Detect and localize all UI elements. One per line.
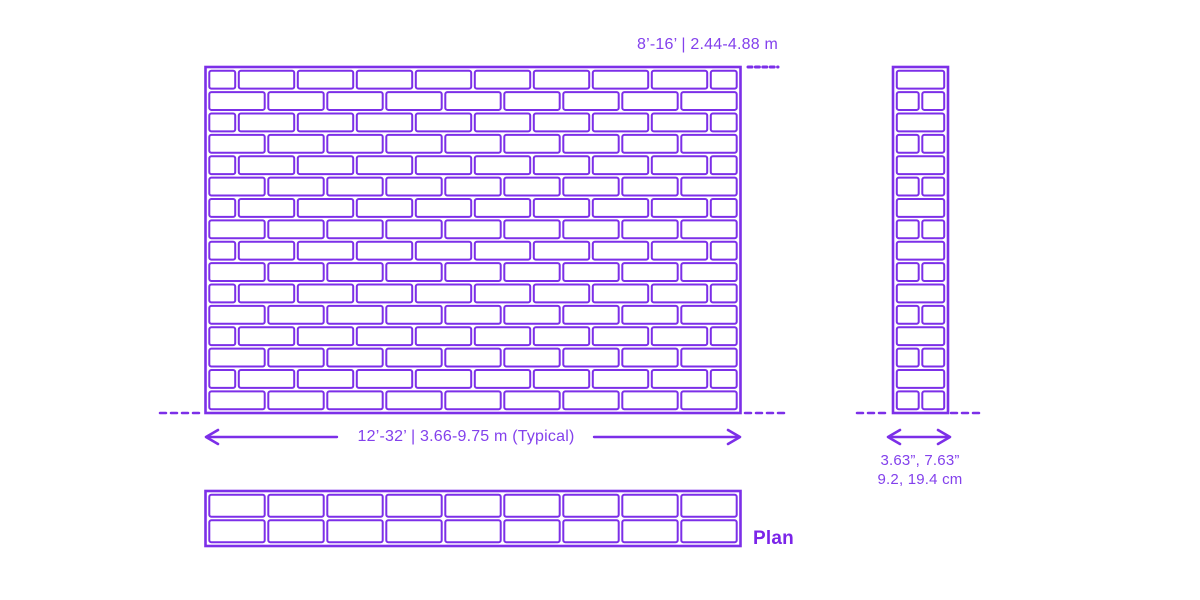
elevation-view-brick-wall bbox=[206, 67, 741, 413]
height-dimension-label: 8’-16’ | 2.44-4.88 m bbox=[637, 36, 778, 54]
diagram-linework bbox=[0, 0, 1200, 600]
brick-wall-diagram: 8’-16’ | 2.44-4.88 m 12’-32’ | 3.66-9.75… bbox=[0, 0, 1200, 600]
thickness-dimension-arrow bbox=[888, 430, 950, 444]
thickness-dimension-metric: 9.2, 19.4 cm bbox=[844, 470, 996, 489]
plan-view-bricks bbox=[206, 491, 741, 546]
section-view-pier bbox=[893, 67, 948, 413]
thickness-dimension-imperial: 3.63”, 7.63” bbox=[844, 451, 996, 470]
width-dimension-label: 12’-32’ | 3.66-9.75 m (Typical) bbox=[340, 428, 592, 446]
thickness-dimension-label: 3.63”, 7.63” 9.2, 19.4 cm bbox=[844, 451, 996, 489]
plan-view-label: Plan bbox=[753, 528, 794, 550]
